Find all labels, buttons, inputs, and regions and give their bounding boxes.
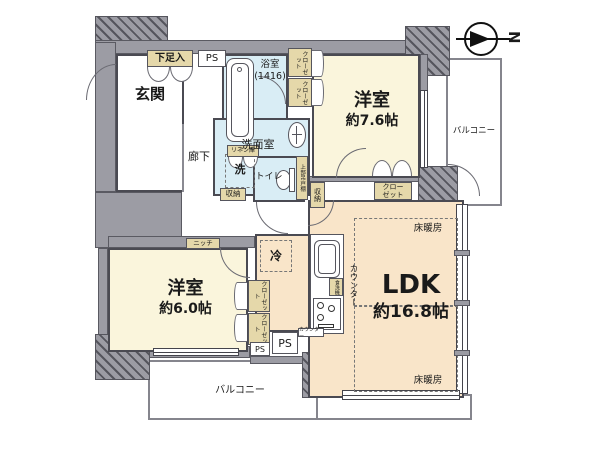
toilet-label: トイレ bbox=[254, 172, 284, 184]
fridge-label: 冷 bbox=[262, 248, 290, 264]
toilet-tank-icon bbox=[289, 168, 295, 192]
ldk-label: LDK 約16.8帖 bbox=[356, 268, 466, 324]
shoe-cabinet-label: 下足入 bbox=[147, 50, 193, 67]
niche-label: ニッチ bbox=[186, 238, 220, 249]
toilet-door-arc bbox=[256, 202, 288, 234]
upper-cabinet-label: 上部吊戸棚 bbox=[296, 156, 308, 200]
genkan-step-line bbox=[182, 124, 184, 192]
balcony-bottom-label: バルコニー bbox=[190, 384, 290, 398]
floor-plan: バルコニー バルコニー 玄関 廊下 浴室 (1416) 洗面室 洗 トイレ bbox=[0, 0, 600, 450]
wall-ps-bottom bbox=[250, 356, 308, 364]
storage-right-label: 収納 bbox=[310, 182, 325, 208]
bedroom-a-name: 洋室 bbox=[354, 90, 390, 113]
counter-small-label: カウンター bbox=[298, 328, 324, 337]
genkan-label: 玄関 bbox=[120, 84, 180, 104]
washroom-label: 洗面室 bbox=[228, 138, 288, 152]
storage-left-label: 収納 bbox=[220, 188, 246, 201]
closet-a2-label: クローゼット bbox=[288, 78, 312, 107]
washer-label: 洗 bbox=[228, 162, 252, 178]
north-label: N bbox=[505, 31, 523, 47]
ps-small-box: PS bbox=[250, 342, 270, 356]
bedroom-b-label: 洋室 約6.0帖 bbox=[128, 272, 243, 324]
bathroom-size: (1416) bbox=[254, 71, 286, 83]
dishwasher-label: 食洗機 bbox=[329, 278, 343, 296]
rouka-label: 廊下 bbox=[186, 150, 212, 164]
floor-heating-bottom-label: 床暖房 bbox=[404, 374, 452, 387]
window-tick-3 bbox=[454, 350, 470, 356]
kitchen-sink-icon bbox=[314, 240, 340, 278]
balcony-right-label: バルコニー bbox=[448, 124, 500, 138]
bathroom-name: 浴室 bbox=[260, 59, 279, 71]
floor-heating-top-label: 床暖房 bbox=[404, 222, 452, 235]
north-arrow-icon bbox=[470, 31, 490, 47]
bedroom-a-size: 約7.6帖 bbox=[346, 113, 399, 131]
ldk-name: LDK bbox=[382, 269, 440, 302]
closet-b1-label: クローゼット bbox=[248, 280, 270, 312]
closet-a1-label: クローゼット bbox=[288, 48, 312, 77]
bathtub-icon bbox=[226, 58, 254, 142]
bedroom-b-size: 約6.0帖 bbox=[159, 301, 212, 319]
counter-label: カウンター bbox=[346, 256, 359, 314]
bedroom-a-label: 洋室 約7.6帖 bbox=[322, 88, 422, 132]
ps-top-box: PS bbox=[198, 50, 226, 67]
window-tick-1 bbox=[454, 250, 470, 256]
entrance-door-arc bbox=[86, 64, 116, 100]
bedroom-b-window bbox=[153, 348, 239, 356]
wall-corridor-bottom bbox=[108, 236, 255, 248]
closet-a3-label: クローゼット bbox=[374, 182, 412, 200]
ps-large-box: PS bbox=[272, 332, 298, 354]
bedroom-b-name: 洋室 bbox=[168, 278, 204, 301]
wall-top-band bbox=[95, 40, 425, 54]
ldk-size: 約16.8帖 bbox=[373, 302, 449, 323]
bathroom-label: 浴室 (1416) bbox=[252, 56, 288, 86]
closet-a1-door bbox=[312, 50, 324, 77]
sink-icon bbox=[288, 122, 306, 148]
closet-b2-label: クローゼット bbox=[248, 313, 270, 345]
